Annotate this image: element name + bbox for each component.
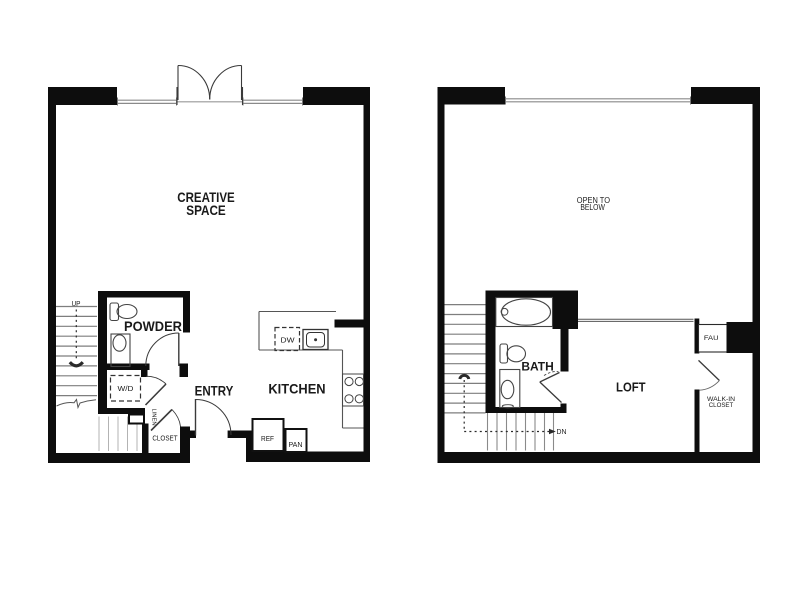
svg-text:DW: DW: [281, 336, 296, 345]
svg-text:LINEN: LINEN: [151, 409, 157, 426]
svg-text:FAU: FAU: [704, 335, 719, 342]
svg-text:PAN: PAN: [289, 442, 303, 449]
svg-text:CLOSET: CLOSET: [152, 434, 178, 443]
svg-text:LOFT: LOFT: [616, 381, 646, 395]
svg-text:UP: UP: [72, 301, 81, 308]
svg-text:ENTRY: ENTRY: [195, 383, 234, 398]
svg-text:POWDER: POWDER: [124, 319, 182, 334]
svg-text:BATH: BATH: [521, 360, 553, 374]
svg-text:W/D: W/D: [118, 384, 135, 393]
svg-text:KITCHEN: KITCHEN: [268, 381, 325, 397]
svg-text:BELOW: BELOW: [580, 202, 605, 212]
svg-text:REF: REF: [261, 436, 274, 443]
svg-text:CLOSET: CLOSET: [709, 402, 734, 409]
svg-text:DN: DN: [557, 429, 567, 436]
svg-text:SPACE: SPACE: [186, 203, 226, 218]
